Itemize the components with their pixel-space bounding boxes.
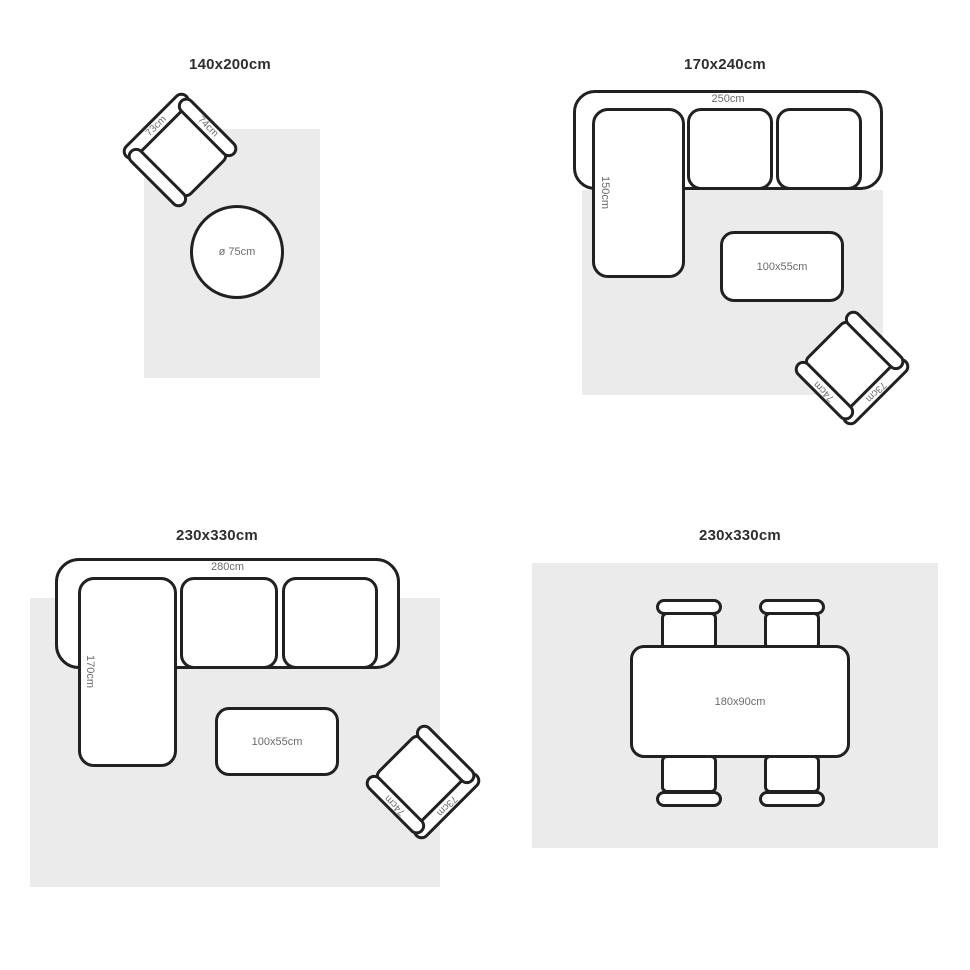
round-table-dimension: ø 75cm	[219, 246, 256, 258]
sofa-cushion	[687, 108, 773, 190]
sofa-cushion	[282, 577, 378, 669]
coffee-table: 100x55cm	[720, 231, 844, 302]
dining-table-dimension: 180x90cm	[715, 696, 766, 708]
rug-size-guide: 140x200cm ø 75cm 73cm 74cm 170x240cm 250…	[0, 0, 970, 970]
panel-title: 230x330cm	[620, 527, 860, 544]
panel-rug-230x330-dining: 230x330cm 180x90cm	[485, 485, 970, 970]
panel-rug-140x200: 140x200cm ø 75cm 73cm 74cm	[0, 0, 485, 485]
sofa-cushion	[776, 108, 862, 190]
dining-chair-back	[656, 599, 722, 615]
panel-title: 230x330cm	[97, 527, 337, 544]
panel-rug-170x240: 170x240cm 250cm 150cm 100x55cm 73cm 74cm	[485, 0, 970, 485]
dining-chair-back	[656, 791, 722, 807]
panel-rug-230x330-living: 230x330cm 280cm 170cm 100x55cm 73cm 74cm	[0, 485, 485, 970]
dining-chair-back	[759, 599, 825, 615]
panel-title: 170x240cm	[605, 56, 845, 73]
coffee-table-dimension: 100x55cm	[252, 736, 303, 748]
dining-chair-back	[759, 791, 825, 807]
coffee-table-dimension: 100x55cm	[757, 261, 808, 273]
dining-chair-seat	[661, 755, 717, 793]
coffee-table: 100x55cm	[215, 707, 339, 776]
sofa-width-dimension: 280cm	[55, 561, 400, 573]
panel-title: 140x200cm	[110, 56, 350, 73]
dining-table: 180x90cm	[630, 645, 850, 758]
sofa-depth-dimension: 150cm	[597, 108, 611, 278]
sofa-width-dimension: 250cm	[573, 93, 883, 105]
dining-chair-seat	[764, 755, 820, 793]
sofa-cushion	[180, 577, 278, 669]
sofa-depth-dimension: 170cm	[82, 577, 96, 767]
round-table: ø 75cm	[190, 205, 284, 299]
